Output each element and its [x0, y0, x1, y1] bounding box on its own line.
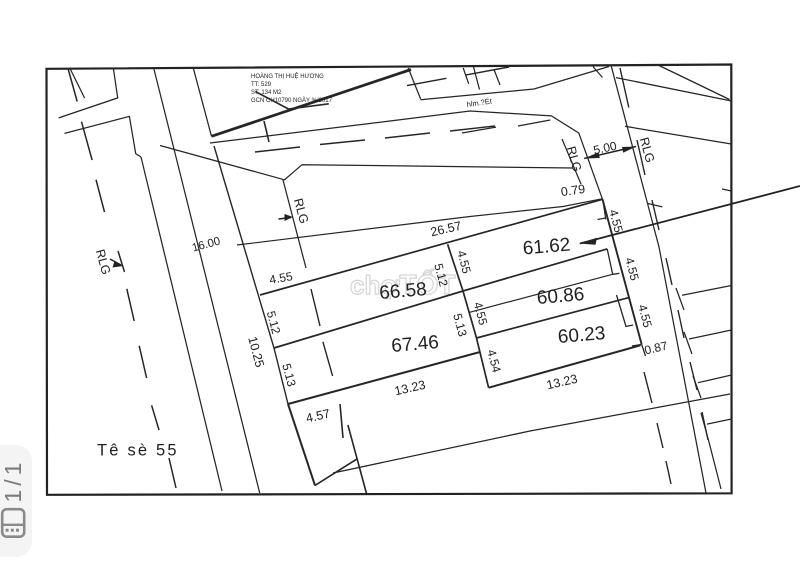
svg-text:60.86: 60.86 — [536, 284, 585, 309]
svg-text:Tê sè 55: Tê sè 55 — [97, 442, 179, 460]
svg-text:HOÀNG THỊ HUỆ HƯƠNG: HOÀNG THỊ HUỆ HƯƠNG — [251, 72, 324, 80]
svg-text:66.58: 66.58 — [378, 279, 427, 304]
svg-text:60.23: 60.23 — [557, 323, 606, 348]
svg-text:67.46: 67.46 — [391, 332, 440, 357]
svg-text:61.62: 61.62 — [522, 234, 571, 259]
svg-text:TT: 529: TT: 529 — [251, 82, 272, 88]
svg-text:GCN CH10790 NGÀY %/2017: GCN CH10790 NGÀY %/2017 — [251, 97, 333, 104]
